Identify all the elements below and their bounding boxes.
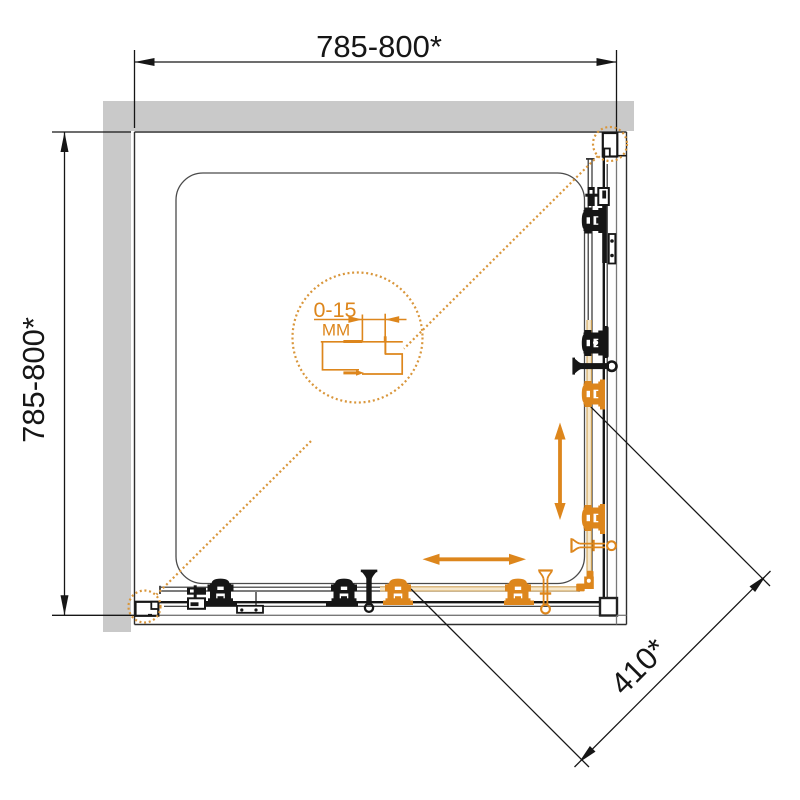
svg-text:785-800*: 785-800* [16, 317, 51, 443]
svg-text:785-800*: 785-800* [316, 29, 442, 64]
svg-text:MM: MM [322, 321, 350, 340]
